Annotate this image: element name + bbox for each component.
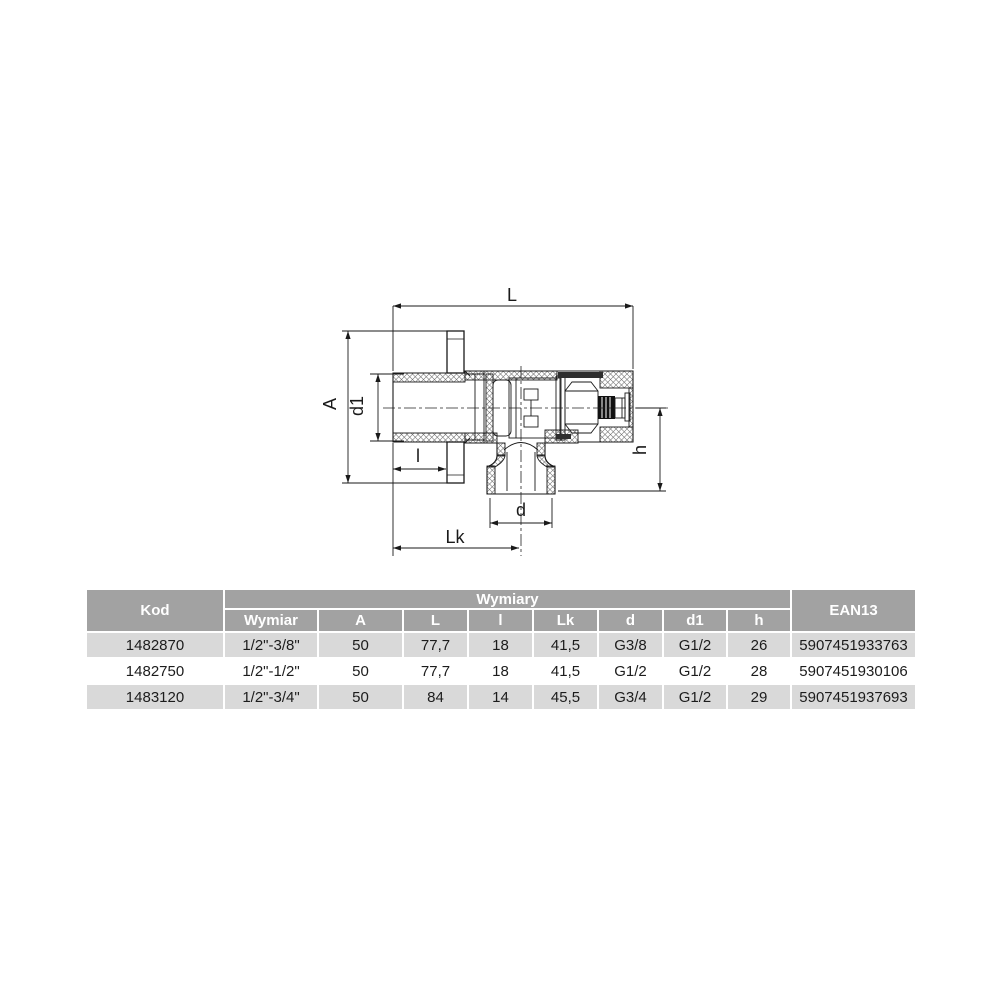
col-header-d1: d1 [663, 609, 727, 632]
cell-d1: G1/2 [663, 684, 727, 710]
cell-ean13: 5907451930106 [791, 658, 916, 684]
col-header-h: h [727, 609, 791, 632]
dimensions-table: Kod Wymiary EAN13 Wymiar A L l Lk d d1 h… [85, 588, 917, 711]
cell-l: 18 [468, 658, 533, 684]
cell-L: 77,7 [403, 658, 468, 684]
col-header-l: l [468, 609, 533, 632]
catalog-page: L A d1 l Lk d h Kod Wymiary EAN13 Wymiar… [0, 0, 1000, 1000]
cell-l: 18 [468, 632, 533, 658]
dim-label-l: l [416, 446, 420, 466]
col-header-L: L [403, 609, 468, 632]
cell-kod: 1482750 [86, 658, 224, 684]
col-header-Lk: Lk [533, 609, 598, 632]
cell-ean13: 5907451933763 [791, 632, 916, 658]
cell-h: 28 [727, 658, 791, 684]
technical-drawing: L A d1 l Lk d h [320, 280, 690, 570]
cell-Lk: 45,5 [533, 684, 598, 710]
dim-label-A: A [320, 398, 340, 410]
cell-d: G3/8 [598, 632, 663, 658]
table-row: 1482870 1/2"-3/8" 50 77,7 18 41,5 G3/8 G… [86, 632, 916, 658]
cell-wymiar: 1/2"-3/4" [224, 684, 318, 710]
col-header-kod: Kod [86, 589, 224, 632]
cell-wymiar: 1/2"-1/2" [224, 658, 318, 684]
cell-a: 50 [318, 658, 403, 684]
col-header-ean13: EAN13 [791, 589, 916, 632]
cell-d1: G1/2 [663, 658, 727, 684]
cell-L: 84 [403, 684, 468, 710]
cell-ean13: 5907451937693 [791, 684, 916, 710]
cell-a: 50 [318, 684, 403, 710]
cell-l: 14 [468, 684, 533, 710]
dim-label-L: L [507, 285, 517, 305]
dim-label-d1: d1 [347, 396, 367, 416]
cell-d: G1/2 [598, 658, 663, 684]
cell-a: 50 [318, 632, 403, 658]
cell-Lk: 41,5 [533, 658, 598, 684]
cell-h: 26 [727, 632, 791, 658]
dim-label-Lk: Lk [445, 527, 465, 547]
cell-d1: G1/2 [663, 632, 727, 658]
dim-label-d: d [516, 500, 526, 520]
col-header-d: d [598, 609, 663, 632]
cell-kod: 1482870 [86, 632, 224, 658]
table-row: 1482750 1/2"-1/2" 50 77,7 18 41,5 G1/2 G… [86, 658, 916, 684]
cell-d: G3/4 [598, 684, 663, 710]
cell-L: 77,7 [403, 632, 468, 658]
valve-stem [598, 393, 630, 421]
col-header-a: A [318, 609, 403, 632]
cell-h: 29 [727, 684, 791, 710]
dim-label-h: h [630, 445, 650, 455]
col-header-wymiar: Wymiar [224, 609, 318, 632]
table-row: 1483120 1/2"-3/4" 50 84 14 45,5 G3/4 G1/… [86, 684, 916, 710]
valve-body [393, 331, 633, 494]
cell-Lk: 41,5 [533, 632, 598, 658]
col-header-wymiary: Wymiary [224, 589, 791, 609]
cell-kod: 1483120 [86, 684, 224, 710]
cell-wymiar: 1/2"-3/8" [224, 632, 318, 658]
